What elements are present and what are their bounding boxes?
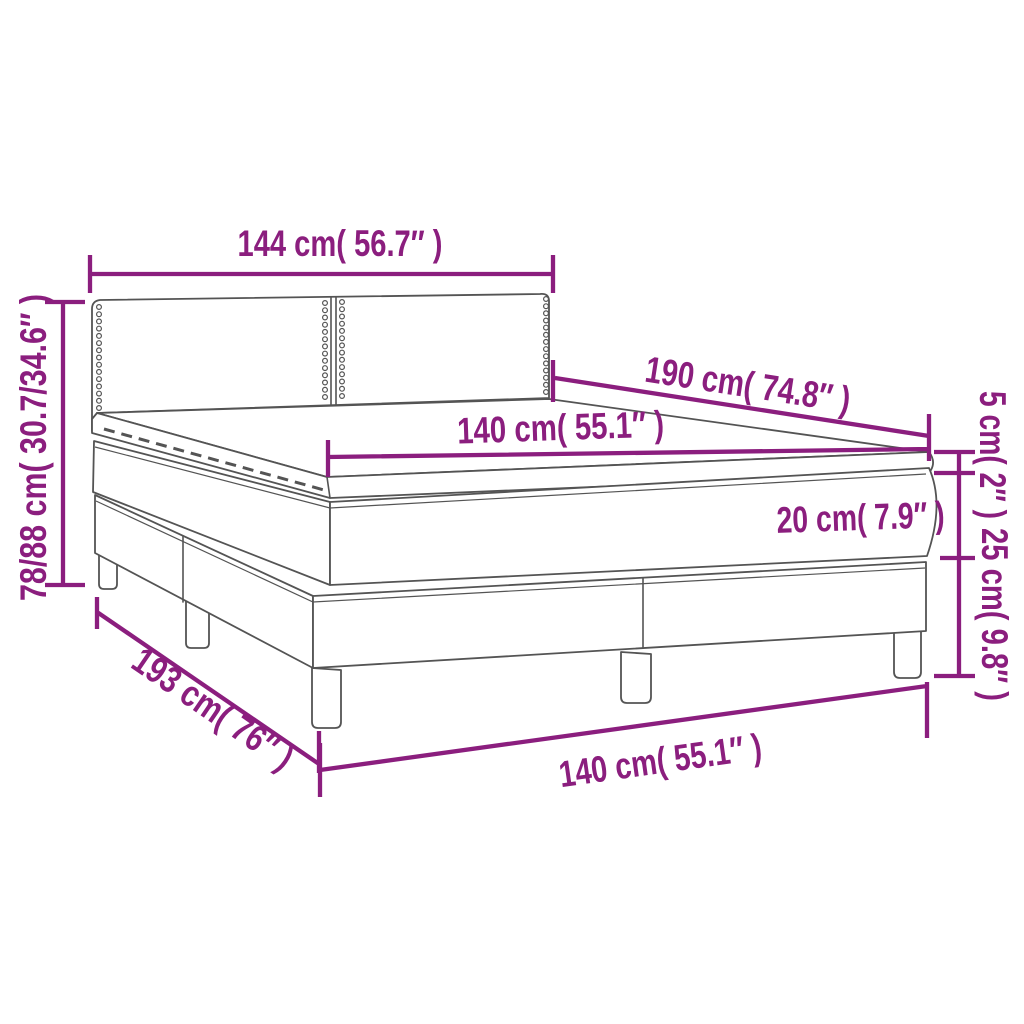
stud-dot <box>544 325 549 330</box>
stud-dot <box>97 334 102 339</box>
diagram-canvas: 144 cm( 56.7″ ) 78/88 cm( 30.7/34.6″ ) 1… <box>0 0 1024 1024</box>
stud-dot <box>323 322 328 327</box>
stud-dot <box>323 337 328 342</box>
stud-dot <box>97 348 102 353</box>
stud-dot <box>323 358 328 363</box>
dimension-label-mattress: 20 cm( 7.9″ ) <box>776 494 945 541</box>
stud-dot <box>323 315 328 320</box>
dimension-label: 78/88 cm( 30.7/34.6″ ) <box>13 294 54 601</box>
stud-dot <box>323 351 328 356</box>
bed-leg <box>312 668 341 728</box>
stud-dot <box>544 332 549 337</box>
stud-dot <box>544 361 549 366</box>
dimension-label-base: 25 cm( 9.8″ ) <box>974 528 1015 701</box>
stud-dot <box>323 395 328 400</box>
stud-dot <box>323 344 328 349</box>
bed-dimension-diagram: 144 cm( 56.7″ ) 78/88 cm( 30.7/34.6″ ) 1… <box>0 0 1024 1024</box>
stud-dot <box>97 312 102 317</box>
stud-dot <box>340 336 345 341</box>
stud-dot <box>340 307 345 312</box>
stud-dot <box>323 380 328 385</box>
stud-dot <box>97 362 102 367</box>
stud-dot <box>97 355 102 360</box>
stud-dot <box>323 308 328 313</box>
stud-dot <box>97 305 102 310</box>
stud-dot <box>340 386 345 391</box>
stud-dot <box>97 377 102 382</box>
stud-dot <box>544 347 549 352</box>
stud-dot <box>323 330 328 335</box>
stud-dot <box>340 329 345 334</box>
stud-dot <box>340 300 345 305</box>
dimension-label: 140 cm( 55.1″ ) <box>556 726 764 795</box>
stud-dot <box>340 365 345 370</box>
stud-dot <box>323 387 328 392</box>
stud-dot <box>544 318 549 323</box>
stud-dot <box>544 340 549 345</box>
stud-dot <box>340 357 345 362</box>
stud-dot <box>544 311 549 316</box>
dimension-label: 193 cm( 76″ ) <box>125 639 302 778</box>
stud-dot <box>97 341 102 346</box>
bed-leg <box>894 627 921 678</box>
stud-dot <box>323 366 328 371</box>
dimension-headboard-width: 144 cm( 56.7″ ) <box>90 223 553 293</box>
stud-dot <box>323 373 328 378</box>
stud-dot <box>340 314 345 319</box>
stud-dot <box>97 406 102 411</box>
stud-dot <box>544 368 549 373</box>
stud-dot <box>97 319 102 324</box>
stud-dot <box>544 297 549 302</box>
dimension-label: 144 cm( 56.7″ ) <box>238 223 443 264</box>
dimension-label: 140 cm( 55.1″ ) <box>456 403 664 451</box>
stud-dot <box>323 301 328 306</box>
stud-dot <box>544 382 549 387</box>
stud-dot <box>340 379 345 384</box>
stud-dot <box>544 354 549 359</box>
bed-leg <box>621 652 651 703</box>
stud-dot <box>544 375 549 380</box>
stud-dot <box>340 343 345 348</box>
stud-dot <box>97 398 102 403</box>
stud-dot <box>340 394 345 399</box>
dimension-label-topper: 5 cm( 2″ ) <box>972 391 1013 519</box>
stud-dot <box>340 321 345 326</box>
stud-dot <box>340 372 345 377</box>
stud-dot <box>97 370 102 375</box>
stud-dot <box>97 391 102 396</box>
stud-dot <box>544 304 549 309</box>
stud-dot <box>97 326 102 331</box>
stud-dot <box>340 350 345 355</box>
stud-dot <box>544 390 549 395</box>
stud-dot <box>97 384 102 389</box>
dimension-total-height: 78/88 cm( 30.7/34.6″ ) <box>13 294 85 601</box>
